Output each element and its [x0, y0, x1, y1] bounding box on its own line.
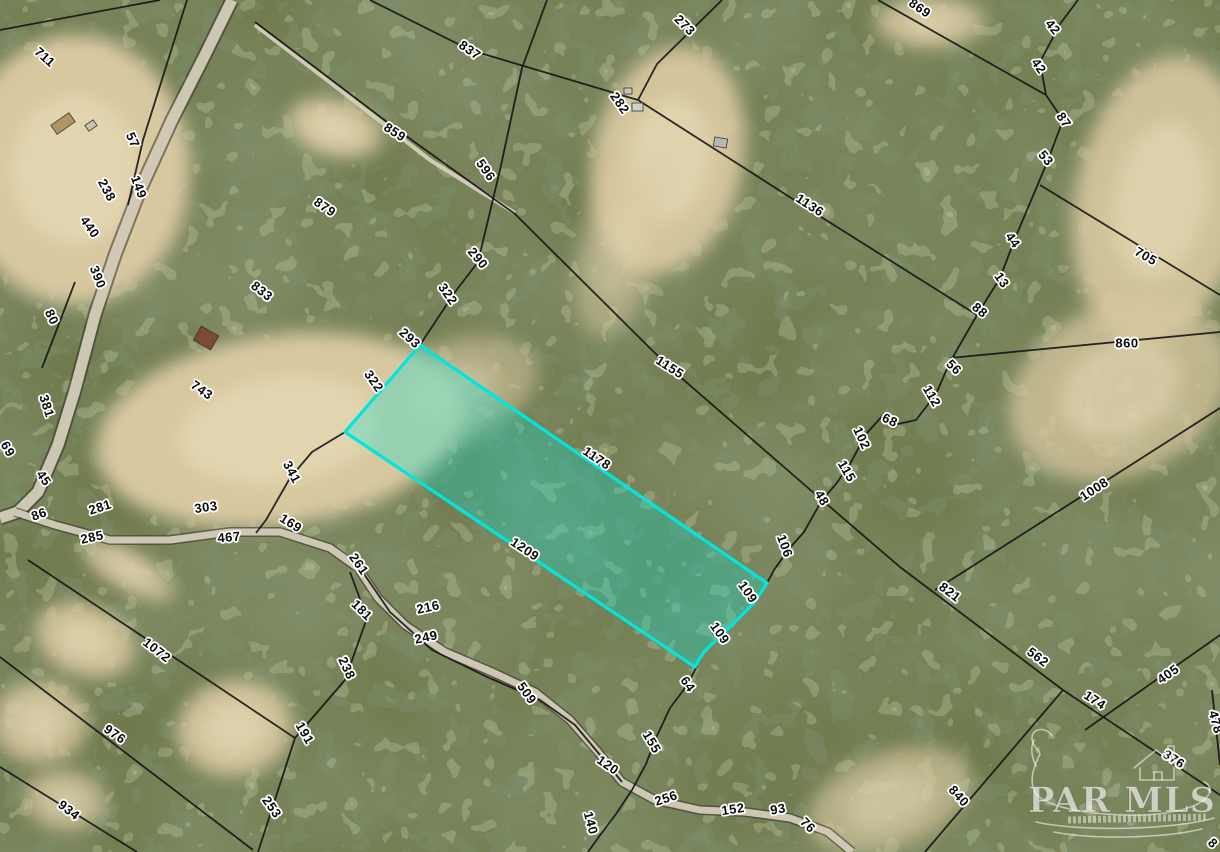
- structure: [713, 137, 727, 148]
- structure: [632, 103, 643, 111]
- cleared-area-bright: [900, 8, 961, 37]
- watermark-water-line-2: [1054, 829, 1202, 837]
- watermark-house-door: [1154, 772, 1162, 780]
- structure: [624, 88, 632, 94]
- watermark-house-chimney: [1168, 746, 1174, 760]
- watermark-title: PAR MLS: [1028, 780, 1216, 821]
- cleared-area-bright: [14, 699, 67, 745]
- aerial-parcel-map: 7115714923844039080381694586281285833743…: [0, 0, 1220, 852]
- cleared-area-bright: [12, 96, 139, 245]
- watermark-house-body: [1140, 768, 1174, 780]
- watermark-house-roof: [1134, 750, 1180, 768]
- mls-watermark: PAR MLS: [1022, 722, 1220, 852]
